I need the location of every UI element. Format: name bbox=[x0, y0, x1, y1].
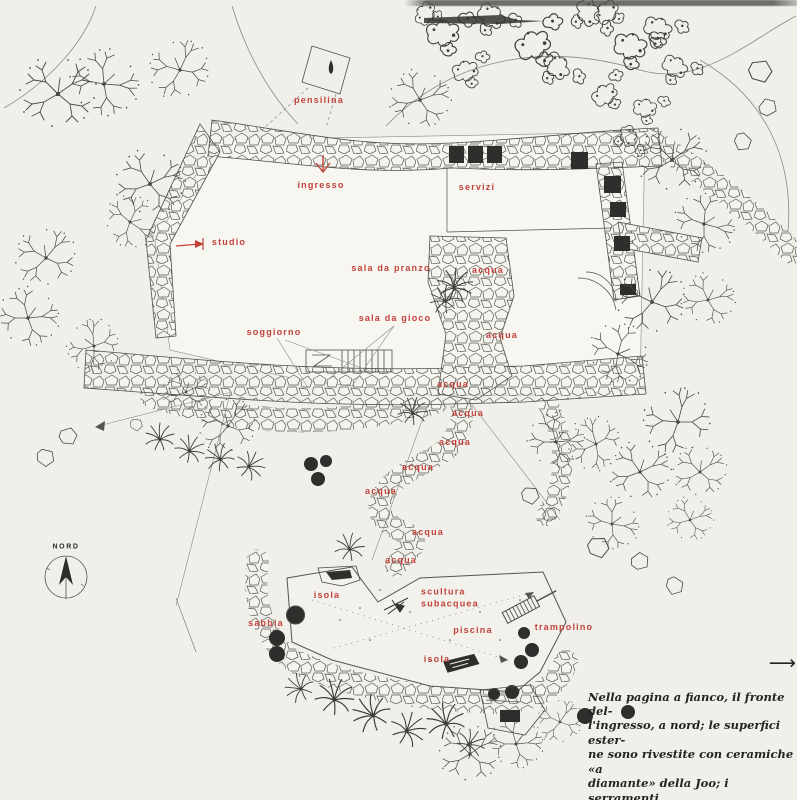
path-arrowhead-icon bbox=[95, 421, 105, 431]
north-compass bbox=[45, 556, 87, 599]
label-isola-1: isola bbox=[314, 590, 341, 602]
label-acqua-9: acqua bbox=[385, 555, 417, 567]
label-acqua-5: acqua bbox=[439, 437, 471, 449]
label-piscina: piscina bbox=[453, 625, 492, 637]
canopy-post-icon bbox=[329, 60, 334, 74]
site-plan-drawing bbox=[0, 0, 797, 800]
caption-text: Nella pagina a fianco, il fronte del- l'… bbox=[588, 690, 796, 800]
label-pensilina: pensilina bbox=[294, 95, 344, 107]
label-acqua-7: acqua bbox=[365, 486, 397, 498]
label-acqua-2: acqua bbox=[486, 330, 518, 342]
scan-edge-shadow bbox=[404, 0, 797, 6]
label-sabbia: sabbia bbox=[248, 618, 284, 630]
label-studio: studio bbox=[212, 237, 246, 249]
label-sala-da-gioco: sala da gioco bbox=[359, 313, 432, 325]
label-acqua-6: acqua bbox=[402, 462, 434, 474]
label-trampolino: trampolino bbox=[535, 622, 594, 634]
label-sala-da-pranzo: sala da pranzo bbox=[351, 263, 430, 275]
scanned-page: pensilina ingresso servizi studio sala d… bbox=[0, 0, 797, 800]
label-scultura-subacquea: scultura subacquea bbox=[421, 586, 479, 609]
pensilina-canopy bbox=[262, 46, 350, 130]
label-acqua-1: acqua bbox=[472, 265, 504, 277]
label-nord: NORD bbox=[52, 542, 79, 551]
caption-arrow-icon: ⟶ bbox=[750, 652, 796, 674]
label-acqua-8: acqua bbox=[412, 527, 444, 539]
label-acqua-4: acqua bbox=[452, 408, 484, 420]
label-isola-2: isola bbox=[424, 654, 451, 666]
label-servizi: servizi bbox=[459, 182, 495, 194]
label-ingresso: ingresso bbox=[297, 180, 344, 192]
label-acqua-3: acqua bbox=[437, 379, 469, 391]
label-soggiorno: soggiorno bbox=[247, 327, 302, 339]
